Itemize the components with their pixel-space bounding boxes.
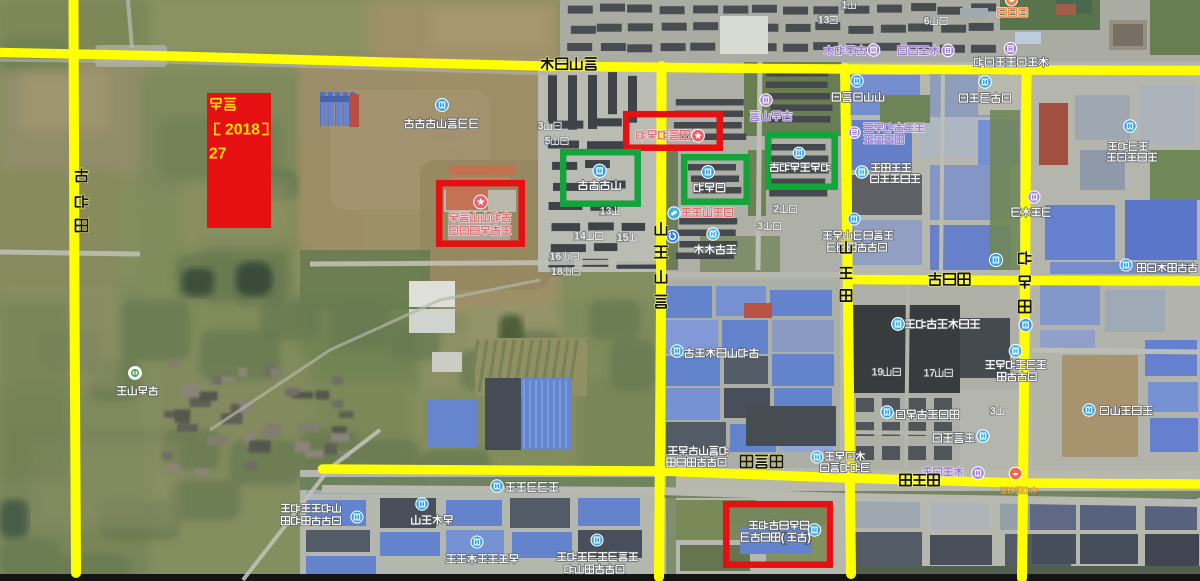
svg-text:13: 13 [600,205,612,217]
svg-text:2018: 2018 [225,121,260,138]
svg-text:2: 2 [773,203,779,215]
svg-text:27: 27 [209,145,227,162]
svg-text:18: 18 [551,266,563,278]
svg-text:3: 3 [538,120,544,132]
svg-text:6: 6 [924,15,930,27]
svg-text:(: ( [781,532,785,544]
svg-text:15: 15 [617,232,629,244]
svg-text:1: 1 [842,0,848,11]
svg-text:17: 17 [924,367,936,379]
svg-text:3: 3 [757,220,763,232]
svg-text:19: 19 [872,366,884,378]
svg-text:16: 16 [550,251,562,263]
svg-text:13: 13 [818,14,830,26]
svg-text:14: 14 [574,230,586,242]
svg-text:3: 3 [990,405,996,417]
svg-text:5: 5 [545,135,551,147]
